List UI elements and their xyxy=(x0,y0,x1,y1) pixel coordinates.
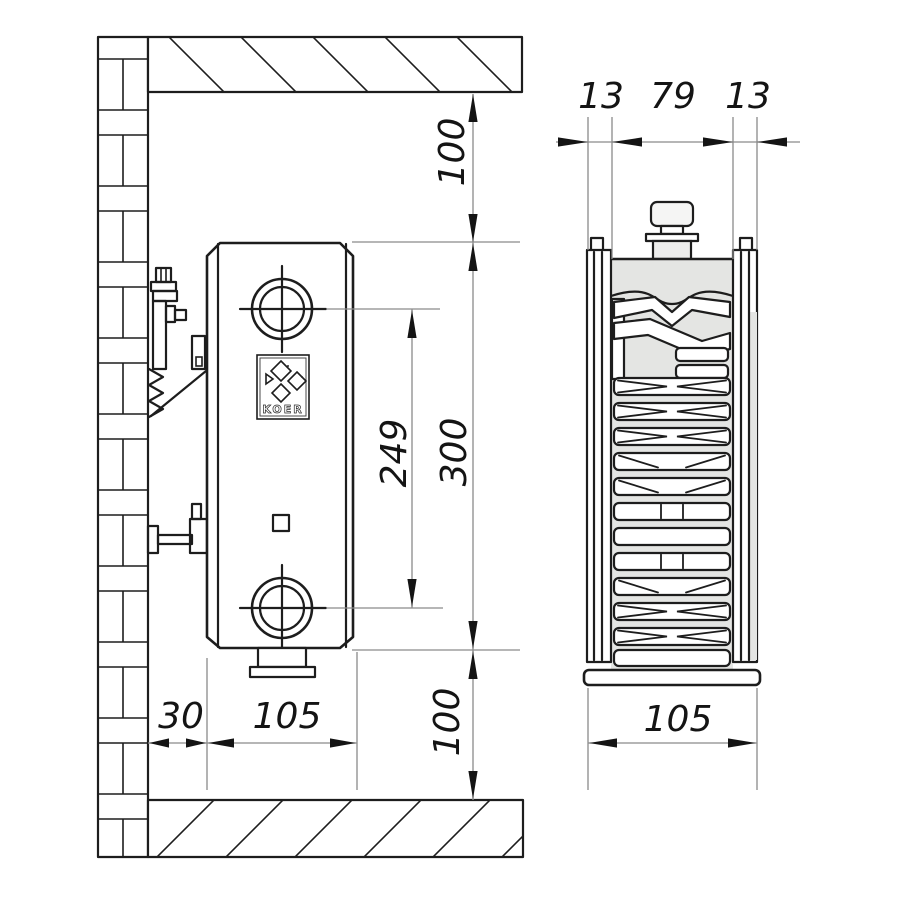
air-vent-valve xyxy=(646,202,698,259)
radiator-hook xyxy=(192,336,205,369)
dim-core-width: 79 xyxy=(650,76,696,117)
bracket-rail xyxy=(153,301,166,369)
hatch-line xyxy=(571,800,628,857)
grille-slot xyxy=(614,478,730,495)
floor xyxy=(148,800,628,857)
fin-bar-1 xyxy=(676,348,728,361)
dim-arrowhead xyxy=(468,771,477,799)
adjust-bolt-head xyxy=(175,310,186,320)
fin-bar-2 xyxy=(676,365,728,378)
ceiling xyxy=(148,37,584,92)
lower-bracket-tab xyxy=(192,504,201,519)
grille-slot xyxy=(614,503,730,520)
dim-arrowhead xyxy=(468,214,477,242)
brick-wall xyxy=(98,37,148,857)
bracket-gusset xyxy=(151,371,206,416)
grille-slot xyxy=(614,650,730,666)
bracket-teeth xyxy=(149,369,163,417)
floor-outline xyxy=(148,800,523,857)
grille-slot xyxy=(614,628,730,645)
valve-knob xyxy=(651,202,693,226)
bottom-grille-tray xyxy=(584,670,760,685)
dim-wall-gap: 30 xyxy=(158,696,204,737)
front-panel-body xyxy=(587,250,611,662)
outlet-stub xyxy=(258,648,306,667)
radiator-body xyxy=(207,243,353,648)
wall-bracket-bottom xyxy=(148,504,207,553)
radiator-section-view xyxy=(584,202,760,685)
radiator-side-view: KOER xyxy=(207,243,353,677)
valve-base xyxy=(653,241,691,259)
dim-arrowhead xyxy=(330,738,356,747)
grille-slot xyxy=(614,378,730,395)
dim-front-panel: 13 xyxy=(578,76,624,117)
dim-arrowhead xyxy=(186,738,206,747)
grille-slot xyxy=(614,553,730,570)
lower-bolt-shank xyxy=(158,535,192,544)
valve-neck xyxy=(661,226,683,234)
dim-arrowhead xyxy=(612,137,642,146)
bracket-arm xyxy=(153,291,177,301)
dim-arrowhead xyxy=(589,738,617,747)
grille-slot xyxy=(614,528,730,545)
dim-back-panel: 13 xyxy=(725,76,771,117)
dim-arrowhead xyxy=(728,738,756,747)
anchor-plate xyxy=(151,282,176,291)
dim-arrowhead xyxy=(407,579,416,607)
back-panel xyxy=(733,238,757,662)
dim-arrowhead xyxy=(208,738,234,747)
hatch-line xyxy=(529,37,584,92)
dim-arrowhead xyxy=(703,137,733,146)
dim-arrowhead xyxy=(468,621,477,649)
grille-slot xyxy=(614,603,730,620)
dim-floor-gap: 100 xyxy=(427,688,468,757)
dim-ceiling-gap: 100 xyxy=(432,118,473,187)
grille-slot xyxy=(614,428,730,445)
radiator-installation-diagram: KOER xyxy=(0,0,900,900)
anchor-bolt-head xyxy=(156,268,171,282)
logo-dot-1 xyxy=(287,365,289,367)
grille-slot xyxy=(614,403,730,420)
bottom-connection xyxy=(250,648,315,677)
dim-arrowhead xyxy=(468,243,477,271)
logo-dot-2 xyxy=(301,376,303,378)
dim-arrowhead xyxy=(558,137,588,146)
dim-pipe-spacing: 249 xyxy=(374,419,415,488)
grille-slot xyxy=(614,578,730,595)
grille-slot xyxy=(614,453,730,470)
logo-wordmark: KOER xyxy=(262,403,303,416)
dim-section-depth: 105 xyxy=(644,699,713,740)
wall-bracket-top xyxy=(149,268,206,417)
technical-drawing: KOER xyxy=(0,0,900,900)
outlet-flange xyxy=(250,667,315,677)
dim-arrowhead xyxy=(407,310,416,338)
dim-radiator-height: 300 xyxy=(434,418,475,487)
front-panel xyxy=(587,238,611,662)
dim-arrowhead xyxy=(149,738,169,747)
dim-arrowhead xyxy=(757,137,787,146)
dim-arrowhead xyxy=(468,651,477,679)
dim-side-depth: 105 xyxy=(253,696,322,737)
lower-anchor-plate xyxy=(148,526,158,553)
back-panel-shade xyxy=(750,312,757,660)
hook-notch xyxy=(196,357,202,366)
adjust-bolt-shank xyxy=(166,306,175,322)
